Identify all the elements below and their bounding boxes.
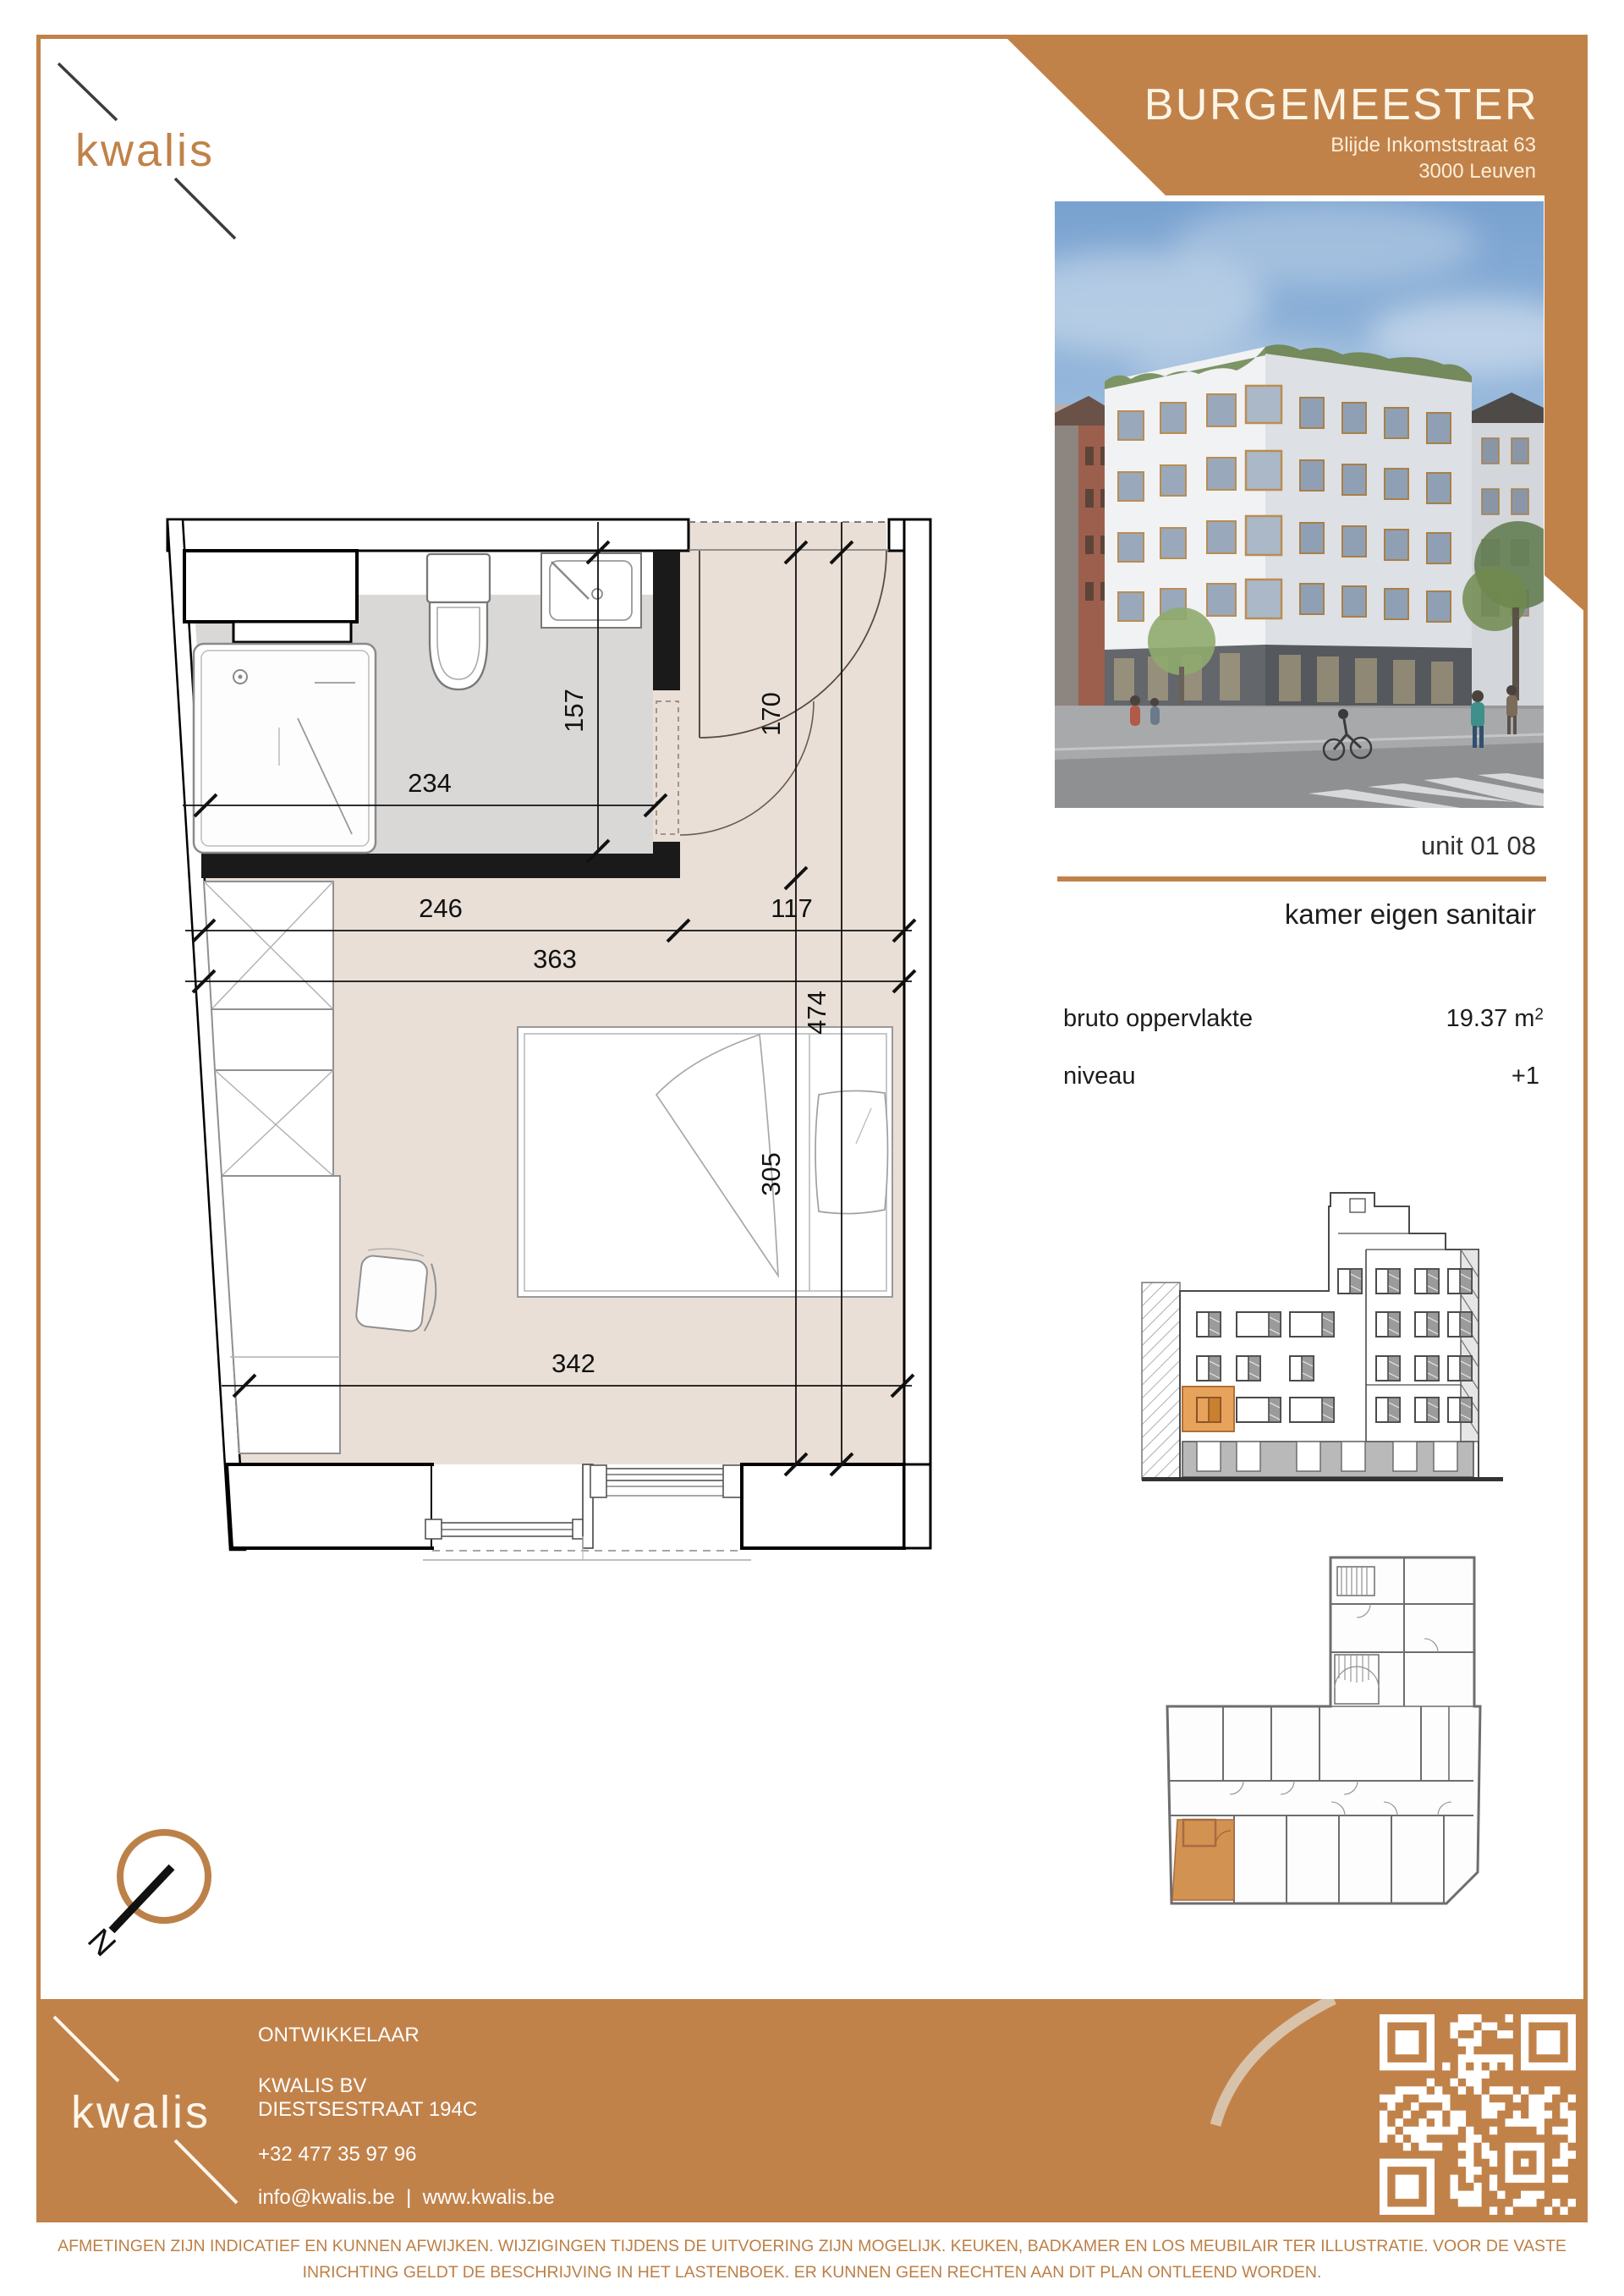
svg-text:246: 246	[419, 893, 463, 923]
svg-text:170: 170	[756, 692, 786, 736]
svg-text:kwalis: kwalis	[71, 2087, 211, 2138]
svg-text:Blijde Inkomststraat 63: Blijde Inkomststraat 63	[1330, 134, 1536, 157]
svg-text:342: 342	[551, 1348, 595, 1378]
svg-text:3000 Leuven: 3000 Leuven	[1418, 160, 1536, 183]
svg-text:117: 117	[771, 893, 812, 923]
svg-text:157: 157	[559, 689, 589, 733]
svg-text:234: 234	[408, 768, 452, 798]
svg-text:305: 305	[756, 1152, 786, 1196]
svg-text:BURGEMEESTER: BURGEMEESTER	[1144, 80, 1539, 129]
svg-text:474: 474	[802, 991, 831, 1035]
svg-text:363: 363	[533, 944, 577, 974]
